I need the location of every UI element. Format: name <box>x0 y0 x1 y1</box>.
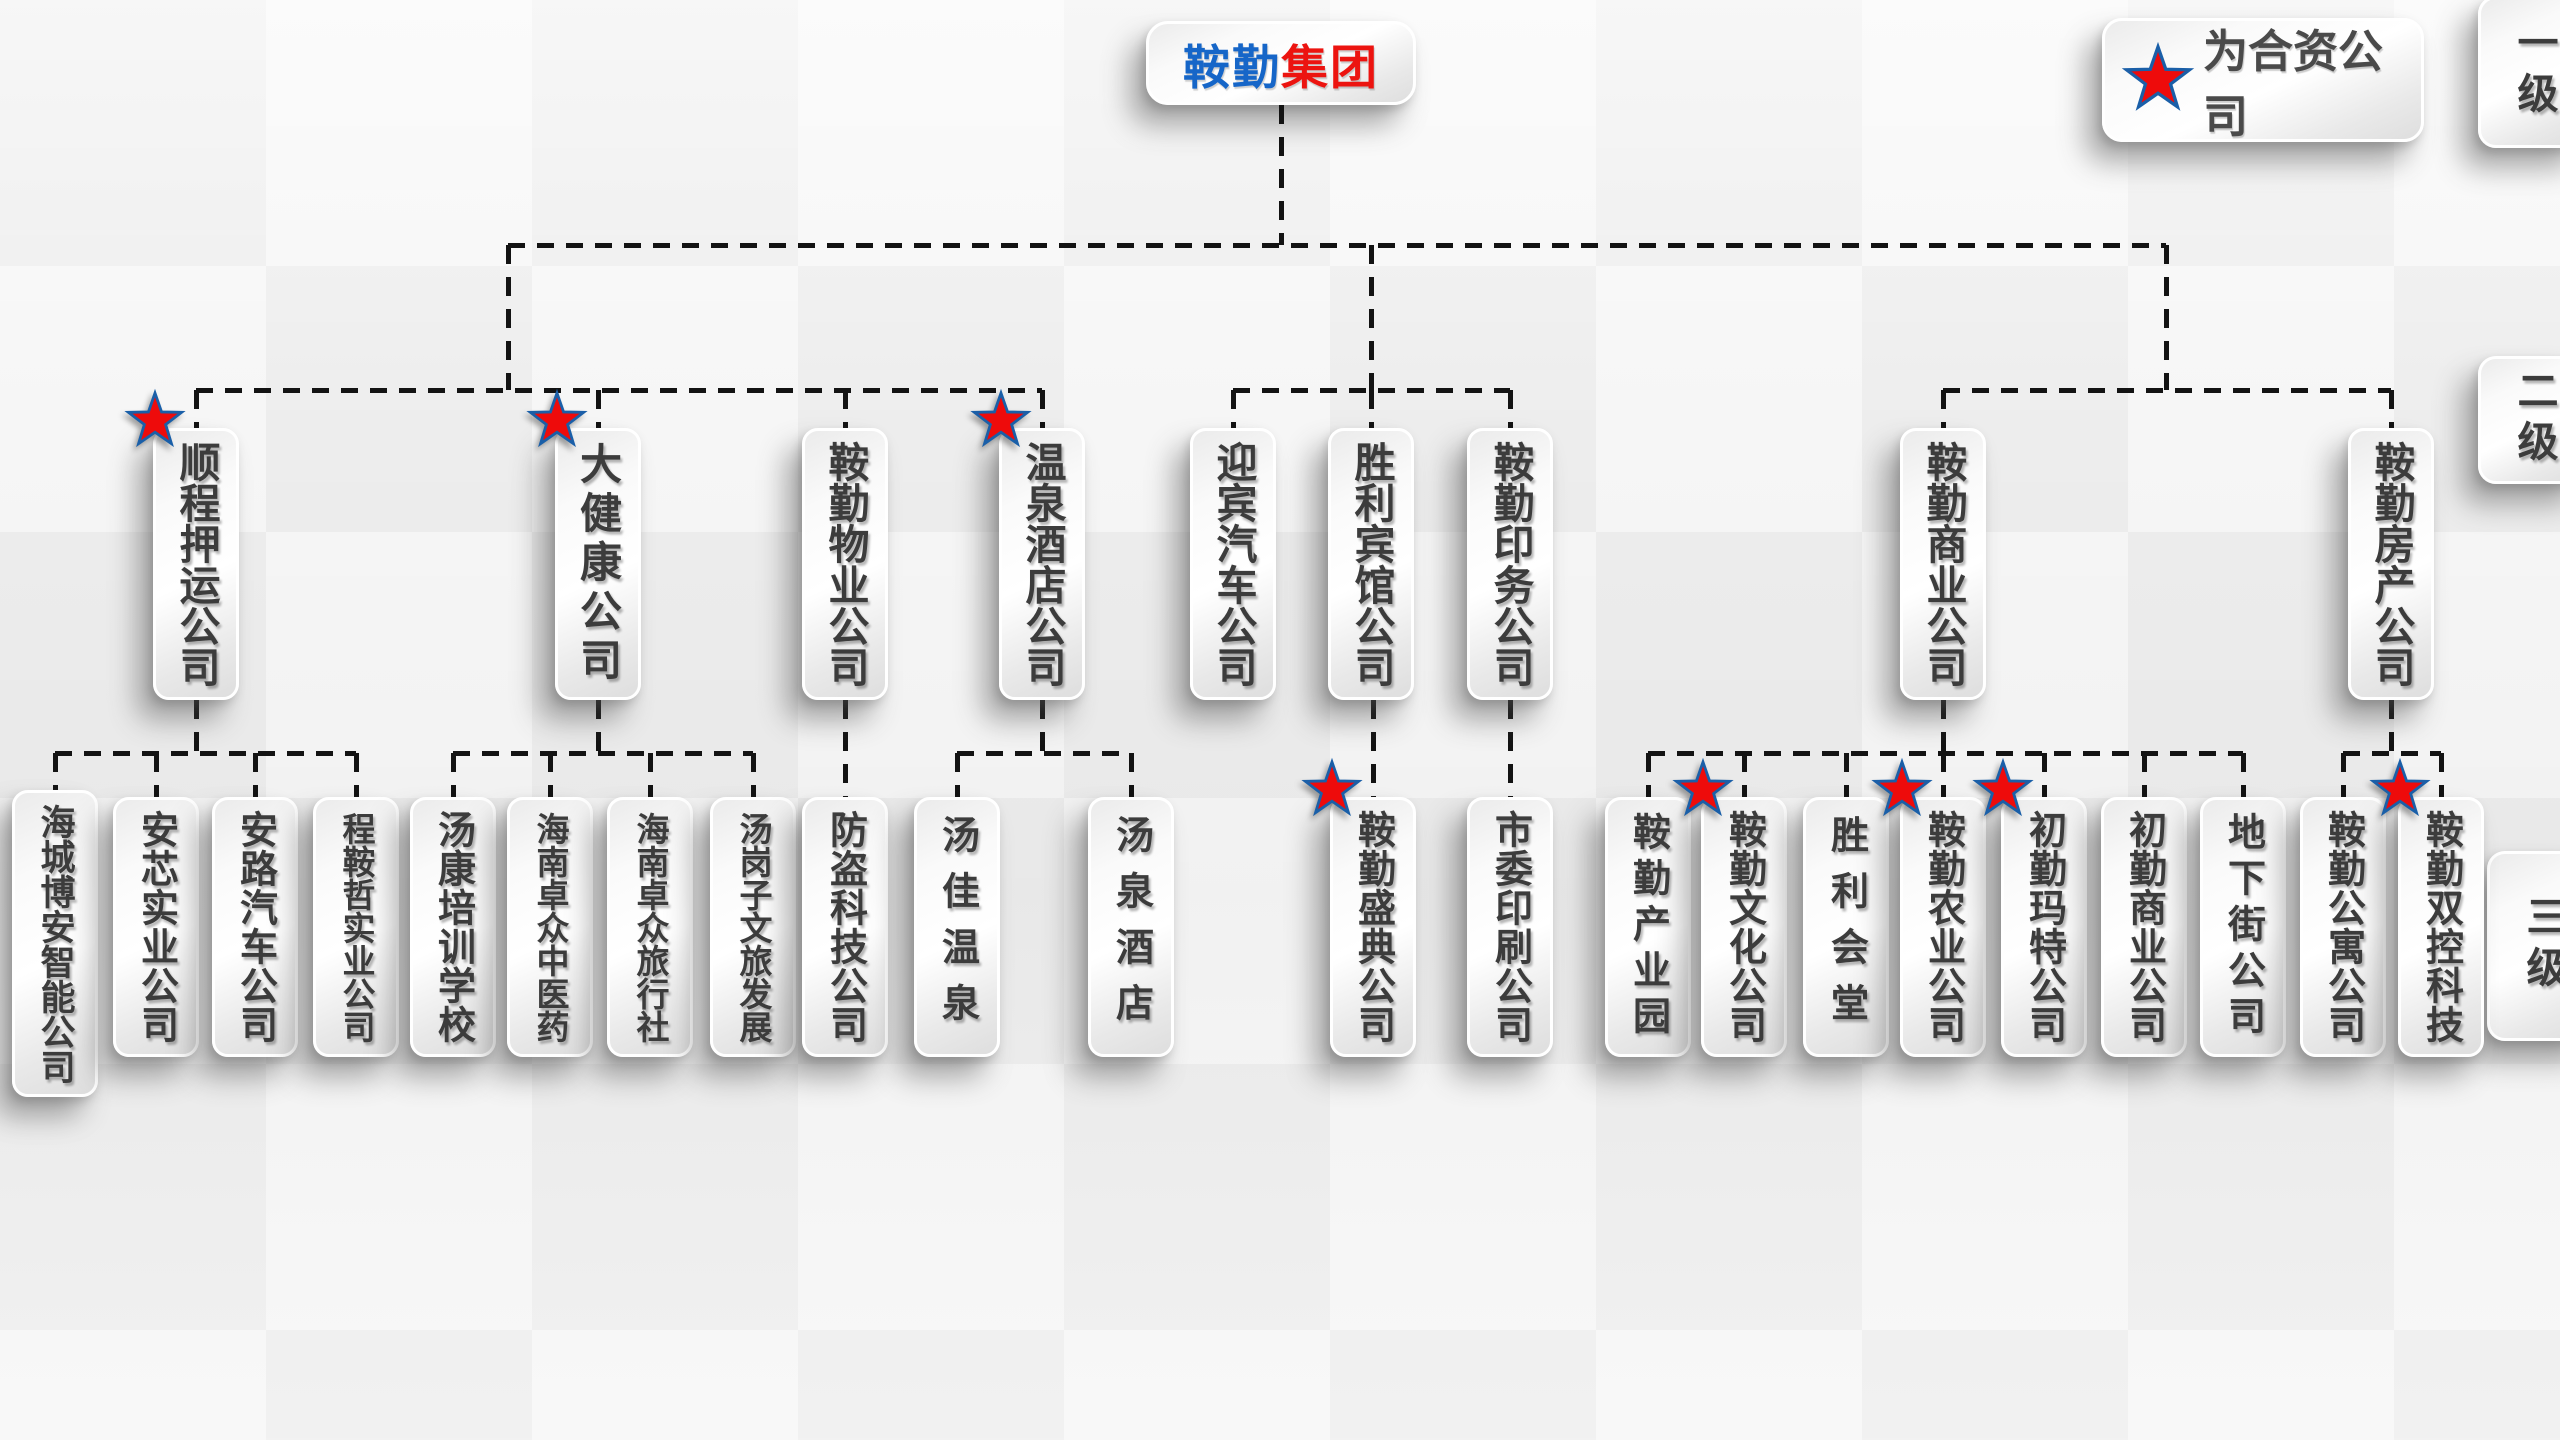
level-badge-3: 三级 <box>2487 851 2560 1041</box>
group-drop-line <box>506 245 511 390</box>
children-trunk-line <box>1040 700 1045 753</box>
branch-node-5: 胜利宾馆公司 <box>1328 428 1414 700</box>
leaf-node-7-3-label: 鞍勤农业公司 <box>1916 810 1971 1044</box>
joint-venture-star-icon <box>1869 757 1935 823</box>
root-name-part-red: 集团 <box>1281 29 1379 98</box>
branch-node-4-label: 迎宾汽车公司 <box>1203 441 1263 687</box>
leaf-node-1-2: 海南卓众旅行社 <box>607 797 693 1057</box>
leaf-node-7-5-label: 初勤商业公司 <box>2117 810 2172 1044</box>
leaf-node-6-0: 市委印刷公司 <box>1467 797 1553 1057</box>
leaf-node-0-0: 海城博安智能公司 <box>12 790 98 1097</box>
leaf-node-7-4-label: 初勤玛特公司 <box>2017 810 2072 1044</box>
child-drop-line <box>2439 753 2444 797</box>
leaf-node-1-1-label: 海南卓众中医药 <box>526 812 574 1043</box>
leaf-node-1-1: 海南卓众中医药 <box>507 797 593 1057</box>
child-drop-line <box>1742 753 1747 797</box>
leaf-node-0-2-label: 安路汽车公司 <box>228 810 283 1044</box>
joint-venture-star-icon <box>1299 757 1365 823</box>
child-drop-line <box>154 753 159 797</box>
joint-venture-star-icon <box>122 388 188 454</box>
leaf-node-0-2: 安路汽车公司 <box>212 797 298 1057</box>
legend: 为合资公司 <box>2102 18 2424 142</box>
level-badge-3-label: 三级 <box>2513 895 2560 997</box>
child-drop-line <box>1646 753 1651 797</box>
leaf-node-3-0: 汤佳温泉 <box>914 797 1000 1057</box>
child-drop-line <box>1844 753 1849 797</box>
level-badge-2: 二级 <box>2478 356 2560 484</box>
branch-node-8: 鞍勤房产公司 <box>2348 428 2434 700</box>
group-branch-line <box>196 388 1042 393</box>
leaf-node-7-2-label: 胜利会堂 <box>1819 815 1874 1039</box>
branch-drop-line <box>1369 390 1374 428</box>
joint-venture-star-icon <box>1970 757 2036 823</box>
leaf-node-1-2-label: 海南卓众旅行社 <box>626 812 674 1043</box>
child-drop-line <box>1941 753 1946 797</box>
child-drop-line <box>2241 753 2246 797</box>
joint-venture-star-icon <box>968 388 1034 454</box>
branch-node-7-label: 鞍勤商业公司 <box>1913 441 1973 687</box>
branch-node-5-label: 胜利宾馆公司 <box>1341 441 1401 687</box>
branch-node-1-label: 大健康公司 <box>568 442 629 687</box>
child-drop-line <box>751 753 756 797</box>
branch-node-0: 顺程押运公司 <box>153 428 239 700</box>
child-drop-line <box>53 753 58 790</box>
leaf-node-1-3: 汤岗子文旅发展 <box>710 797 796 1057</box>
child-drop-line <box>253 753 258 797</box>
root-node: 鞍勤集团 <box>1146 21 1416 105</box>
branch-node-3-label: 温泉酒店公司 <box>1012 441 1072 687</box>
branch-node-2: 鞍勤物业公司 <box>802 428 888 700</box>
leaf-node-2-0-label: 防盗科技公司 <box>818 810 873 1044</box>
leaf-node-0-3-label: 程鞍哲实业公司 <box>332 812 380 1043</box>
child-drop-line <box>354 753 359 797</box>
leaf-node-7-0-label: 鞍勤产业园 <box>1621 812 1676 1042</box>
root-name-part-blue: 鞍勤 <box>1183 29 1281 98</box>
children-branch-line <box>55 751 356 756</box>
main-branch-line <box>508 243 2166 248</box>
children-trunk-line <box>2389 700 2394 753</box>
child-drop-line <box>2042 753 2047 797</box>
child-drop-line <box>2341 753 2346 797</box>
children-branch-line <box>453 751 753 756</box>
leaf-node-0-3: 程鞍哲实业公司 <box>313 797 399 1057</box>
joint-venture-star-icon <box>1670 757 1736 823</box>
leaf-node-0-0-label: 海城博安智能公司 <box>30 804 81 1084</box>
leaf-node-7-3: 鞍勤农业公司 <box>1900 797 1986 1057</box>
children-trunk-line <box>1941 700 1946 753</box>
branch-node-7: 鞍勤商业公司 <box>1900 428 1986 700</box>
leaf-node-0-1: 安芯实业公司 <box>113 797 199 1057</box>
level-badge-2-label: 二级 <box>2504 369 2560 471</box>
level-badge-1: 一级 <box>2478 0 2560 148</box>
child-drop-line <box>451 753 456 797</box>
branch-node-6: 鞍勤印务公司 <box>1467 428 1553 700</box>
branch-node-2-label: 鞍勤物业公司 <box>815 441 875 687</box>
leaf-node-7-1-label: 鞍勤文化公司 <box>1717 810 1772 1044</box>
leaf-node-3-1-label: 汤泉酒店 <box>1104 815 1159 1039</box>
group-branch-line <box>1943 388 2391 393</box>
branch-drop-line <box>194 390 199 428</box>
child-drop-line <box>548 753 553 797</box>
level-badge-1-label: 一级 <box>2504 21 2560 123</box>
leaf-node-8-0: 鞍勤公寓公司 <box>2300 797 2386 1057</box>
leaf-node-7-6: 地下街公司 <box>2200 797 2286 1057</box>
leaf-node-1-0: 汤康培训学校 <box>410 797 496 1057</box>
branch-node-1: 大健康公司 <box>555 428 641 700</box>
leaf-node-3-1: 汤泉酒店 <box>1088 797 1174 1057</box>
branch-drop-line <box>1040 390 1045 428</box>
leaf-node-8-1-label: 鞍勤双控科技 <box>2414 810 2469 1044</box>
branch-node-4: 迎宾汽车公司 <box>1190 428 1276 700</box>
leaf-node-7-5: 初勤商业公司 <box>2101 797 2187 1057</box>
leaf-node-1-3-label: 汤岗子文旅发展 <box>729 812 777 1043</box>
branch-drop-line <box>1508 390 1513 428</box>
branch-drop-line <box>1231 390 1236 428</box>
leaf-node-5-0: 鞍勤盛典公司 <box>1330 797 1416 1057</box>
leaf-node-8-0-label: 鞍勤公寓公司 <box>2316 810 2371 1044</box>
children-branch-line <box>957 751 1131 756</box>
branch-drop-line <box>1941 390 1946 428</box>
leaf-node-7-1: 鞍勤文化公司 <box>1701 797 1787 1057</box>
child-drop-line <box>648 753 653 797</box>
branch-drop-line <box>843 390 848 428</box>
child-drop-line <box>843 700 848 797</box>
branch-drop-line <box>2389 390 2394 428</box>
children-trunk-line <box>194 700 199 753</box>
branch-node-8-label: 鞍勤房产公司 <box>2361 441 2421 687</box>
child-drop-line <box>1508 700 1513 797</box>
leaf-node-2-0: 防盗科技公司 <box>802 797 888 1057</box>
leaf-node-7-2: 胜利会堂 <box>1803 797 1889 1057</box>
branch-node-3: 温泉酒店公司 <box>999 428 1085 700</box>
org-chart-canvas: 鞍勤集团 为合资公司 一级 二级 三级 顺程押运公司海城博安智能公司安芯实业公司… <box>0 0 2560 1440</box>
child-drop-line <box>1129 753 1134 797</box>
group-drop-line <box>2164 245 2169 390</box>
branch-node-6-label: 鞍勤印务公司 <box>1480 441 1540 687</box>
child-drop-line <box>1371 700 1376 797</box>
leaf-node-3-0-label: 汤佳温泉 <box>930 815 985 1039</box>
leaf-node-7-6-label: 地下街公司 <box>2216 812 2271 1042</box>
leaf-node-8-1: 鞍勤双控科技 <box>2398 797 2484 1057</box>
leaf-node-7-0: 鞍勤产业园 <box>1605 797 1691 1057</box>
leaf-node-7-4: 初勤玛特公司 <box>2001 797 2087 1057</box>
leaf-node-0-1-label: 安芯实业公司 <box>129 810 184 1044</box>
joint-venture-star-icon <box>2367 757 2433 823</box>
root-drop-line <box>1279 105 1284 245</box>
leaf-node-1-0-label: 汤康培训学校 <box>426 810 481 1044</box>
branch-node-0-label: 顺程押运公司 <box>166 441 226 687</box>
child-drop-line <box>2142 753 2147 797</box>
child-drop-line <box>955 753 960 797</box>
leaf-node-5-0-label: 鞍勤盛典公司 <box>1346 810 1401 1044</box>
children-trunk-line <box>596 700 601 753</box>
joint-venture-star-icon <box>2119 41 2197 119</box>
joint-venture-star-icon <box>524 388 590 454</box>
branch-drop-line <box>596 390 601 428</box>
group-drop-line <box>1369 245 1374 390</box>
legend-label: 为合资公司 <box>2203 15 2421 145</box>
children-branch-line <box>2343 751 2441 756</box>
leaf-node-6-0-label: 市委印刷公司 <box>1483 810 1538 1044</box>
